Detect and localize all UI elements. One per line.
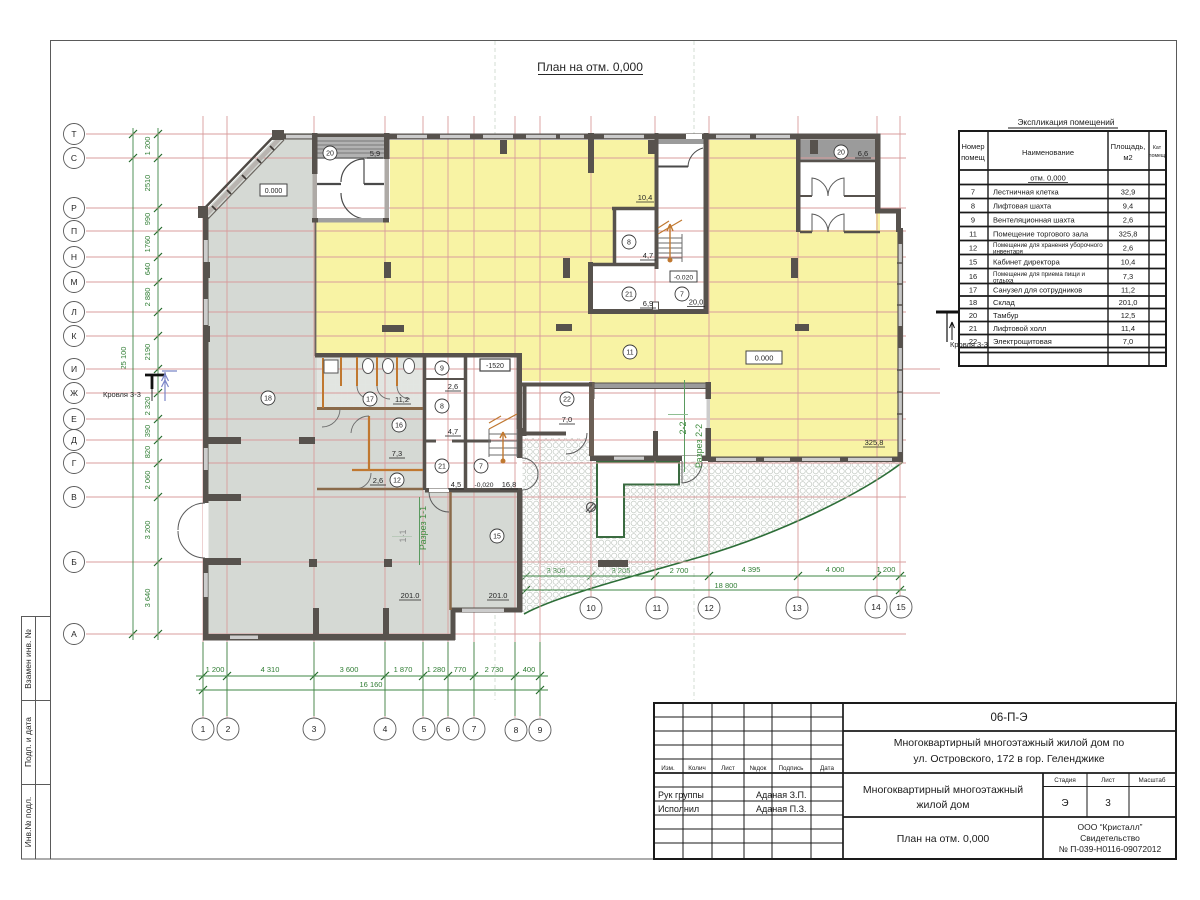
svg-text:10,4: 10,4 [638,193,653,202]
svg-text:Взамен инв. №: Взамен инв. № [23,629,33,689]
svg-text:15: 15 [969,258,977,267]
svg-text:Санузел для сотрудников: Санузел для сотрудников [993,286,1082,295]
svg-text:201,0: 201,0 [1119,298,1138,307]
svg-text:Лист: Лист [1101,777,1115,784]
svg-text:5,9: 5,9 [370,149,380,158]
svg-text:7: 7 [680,292,684,299]
svg-text:0.000: 0.000 [265,188,283,195]
svg-text:Ж: Ж [70,388,78,398]
svg-text:2,6: 2,6 [1123,216,1133,225]
svg-text:Вентеляционная шахта: Вентеляционная шахта [993,216,1075,225]
svg-text:Э: Э [1061,798,1068,809]
svg-text:7,0: 7,0 [1123,337,1133,346]
svg-text:1 200: 1 200 [143,137,152,156]
svg-text:9,4: 9,4 [1123,202,1133,211]
svg-text:11,2: 11,2 [395,395,409,404]
svg-text:Номер: Номер [961,142,984,151]
svg-text:7,0: 7,0 [562,415,572,424]
svg-text:Кровля 3-3: Кровля 3-3 [103,390,141,399]
svg-text:16: 16 [395,423,403,430]
svg-text:25 100: 25 100 [119,347,128,370]
svg-text:2 060: 2 060 [143,471,152,490]
svg-text:отм. 0,000: отм. 0,000 [1030,174,1066,183]
svg-text:Лестничная клетка: Лестничная клетка [993,188,1060,197]
svg-text:-0.020: -0.020 [674,275,693,282]
svg-text:7: 7 [971,188,975,197]
svg-text:Разрез 2-2: Разрез 2-2 [694,424,704,468]
svg-text:2510: 2510 [143,175,152,192]
svg-text:Многоквартирный многоэтажный: Многоквартирный многоэтажный [863,784,1023,796]
svg-text:-0,020: -0,020 [475,482,494,489]
svg-text:8: 8 [627,240,631,247]
svg-text:А: А [71,629,77,639]
svg-text:16,8: 16,8 [502,480,517,489]
svg-text:22: 22 [563,397,571,404]
svg-text:Рук группы: Рук группы [658,790,704,800]
svg-text:2-2: 2-2 [678,421,688,434]
svg-text:20: 20 [837,150,845,157]
svg-text:Б: Б [71,557,77,567]
svg-text:13: 13 [792,603,802,613]
svg-text:4,7: 4,7 [643,251,653,260]
svg-text:П: П [71,226,77,236]
svg-text:7,3: 7,3 [392,449,402,458]
svg-text:Е: Е [71,414,77,424]
svg-text:Кабинет директора: Кабинет директора [993,258,1061,267]
svg-text:2,6: 2,6 [448,382,458,391]
svg-text:Лифтовая шахта: Лифтовая шахта [993,202,1052,211]
svg-text:2 880: 2 880 [143,288,152,307]
svg-text:17: 17 [366,397,374,404]
svg-text:640: 640 [143,263,152,276]
svg-text:11: 11 [653,603,662,613]
svg-text:5: 5 [422,724,427,734]
svg-text:Н: Н [71,252,77,262]
svg-text:325,8: 325,8 [1119,230,1138,239]
svg-text:8: 8 [514,725,519,735]
svg-text:3: 3 [312,724,317,734]
svg-text:390: 390 [143,425,152,438]
svg-text:12: 12 [704,603,714,613]
svg-text:20: 20 [326,151,334,158]
svg-text:Склад: Склад [993,298,1015,307]
svg-text:20: 20 [969,311,977,320]
svg-text:Наименование: Наименование [1022,148,1074,157]
svg-text:4 000: 4 000 [826,565,845,574]
svg-text:Л: Л [71,307,77,317]
svg-text:Стадия: Стадия [1054,777,1075,784]
svg-text:18: 18 [969,298,977,307]
svg-text:17: 17 [969,286,977,295]
svg-text:1 200: 1 200 [877,565,896,574]
svg-text:6,9: 6,9 [643,299,653,308]
svg-text:Электрощитовая: Электрощитовая [993,337,1052,346]
svg-text:№ П-039-Н0116-09072012: № П-039-Н0116-09072012 [1059,844,1162,854]
svg-text:-1520: -1520 [486,363,504,370]
svg-text:6,6: 6,6 [858,149,868,158]
svg-text:1 200: 1 200 [206,665,225,674]
svg-text:9: 9 [440,366,444,373]
svg-text:3 640: 3 640 [143,589,152,608]
svg-text:Лист: Лист [721,765,735,772]
svg-text:20,0: 20,0 [689,298,704,307]
svg-text:400: 400 [523,665,536,674]
svg-text:Колич: Колич [688,765,706,772]
svg-text:1 870: 1 870 [394,665,413,674]
svg-text:8: 8 [440,404,444,411]
svg-text:770: 770 [454,665,467,674]
svg-text:16 160: 16 160 [360,680,383,689]
svg-text:Масштаб: Масштаб [1139,776,1166,784]
svg-text:15: 15 [896,602,906,612]
svg-text:3 600: 3 600 [340,665,359,674]
svg-text:Р: Р [71,203,77,213]
svg-text:Экспликация помещений: Экспликация помещений [1017,117,1114,127]
svg-text:План на отм. 0,000: План на отм. 0,000 [537,60,643,74]
svg-text:жилой дом: жилой дом [917,799,970,811]
svg-text:7,3: 7,3 [1123,272,1133,281]
svg-text:11: 11 [626,350,633,357]
svg-text:1760: 1760 [143,236,152,253]
svg-text:22: 22 [969,337,977,346]
svg-text:12: 12 [969,244,977,253]
svg-text:2 320: 2 320 [143,397,152,416]
svg-text:11,4: 11,4 [1121,324,1135,333]
svg-text:14: 14 [871,602,881,612]
svg-text:Аданая З.П.: Аданая З.П. [756,790,807,800]
svg-text:К: К [72,331,77,341]
svg-text:7: 7 [472,724,477,734]
svg-text:Д: Д [71,435,77,445]
svg-text:6: 6 [446,724,451,734]
svg-text:Помещение торгового зала: Помещение торгового зала [993,230,1089,239]
svg-text:План на отм. 0,000: План на отм. 0,000 [897,833,990,845]
svg-text:Лифтовой холл: Лифтовой холл [993,324,1046,333]
svg-text:Инв.№ подл.: Инв.№ подл. [23,797,33,848]
svg-text:32,9: 32,9 [1121,188,1136,197]
svg-text:4 310: 4 310 [261,665,280,674]
svg-text:9: 9 [538,725,543,735]
svg-text:1: 1 [201,724,206,734]
svg-text:4,7: 4,7 [448,427,458,436]
svg-text:10,4: 10,4 [1121,258,1136,267]
svg-text:3: 3 [1105,798,1111,809]
svg-text:Многоквартирный многоэтажный ж: Многоквартирный многоэтажный жилой дом п… [894,737,1125,749]
svg-text:В: В [71,492,77,502]
svg-text:2 730: 2 730 [485,665,504,674]
svg-text:2,6: 2,6 [373,476,383,485]
svg-text:№док: №док [750,765,767,772]
svg-text:2: 2 [226,724,231,734]
svg-text:16: 16 [969,272,977,281]
svg-text:21: 21 [625,292,633,299]
svg-text:3 200: 3 200 [143,521,152,540]
svg-text:инвентаря: инвентаря [993,249,1023,256]
svg-text:Аданая П.З.: Аданая П.З. [756,804,807,814]
svg-text:201.0: 201.0 [489,591,508,600]
svg-text:С: С [71,153,77,163]
svg-text:990: 990 [143,213,152,226]
svg-text:10: 10 [586,603,596,613]
svg-text:201.0: 201.0 [401,591,420,600]
svg-text:помещ: помещ [961,153,985,162]
svg-text:Тамбур: Тамбур [993,311,1018,320]
svg-text:0.000: 0.000 [755,354,774,363]
svg-text:21: 21 [438,464,446,471]
svg-text:325,8: 325,8 [865,438,884,447]
svg-text:11: 11 [969,230,977,239]
svg-text:2190: 2190 [143,344,152,361]
svg-text:Подпись: Подпись [779,765,805,772]
svg-text:2,6: 2,6 [1123,244,1133,253]
svg-text:Исполнил: Исполнил [658,804,699,814]
svg-text:М: М [70,277,77,287]
svg-text:Изм.: Изм. [661,765,675,772]
svg-text:820: 820 [143,446,152,459]
svg-text:Подп. и дата: Подп. и дата [23,717,33,767]
svg-text:8: 8 [971,202,975,211]
svg-text:помещ: помещ [1149,153,1166,159]
svg-text:1 280: 1 280 [427,665,446,674]
svg-text:15: 15 [493,534,501,541]
svg-text:7: 7 [479,464,483,471]
svg-text:Свидетельство: Свидетельство [1080,833,1140,843]
svg-text:21: 21 [969,324,977,333]
svg-text:12: 12 [393,478,401,485]
svg-text:отдыха: отдыха [993,278,1014,285]
svg-text:И: И [71,364,77,374]
svg-text:2 700: 2 700 [670,566,689,575]
svg-text:4: 4 [383,724,388,734]
svg-text:ул. Островского, 172 в гор. Ге: ул. Островского, 172 в гор. Геленджике [913,753,1104,765]
svg-text:4 395: 4 395 [742,565,761,574]
svg-text:12,5: 12,5 [1121,311,1136,320]
svg-text:4,5: 4,5 [451,480,461,489]
svg-text:Т: Т [71,129,76,139]
svg-text:18: 18 [264,396,272,403]
svg-text:06-П-Э: 06-П-Э [991,712,1028,724]
svg-text:м2: м2 [1123,153,1132,162]
svg-text:ООО “Кристалл”: ООО “Кристалл” [1078,822,1143,832]
svg-text:Кат: Кат [1153,145,1162,151]
svg-text:Дата: Дата [820,765,834,772]
svg-text:11,2: 11,2 [1121,286,1135,295]
svg-text:18 800: 18 800 [715,581,738,590]
svg-text:Площадь,: Площадь, [1111,142,1146,151]
svg-text:9: 9 [971,216,975,225]
svg-text:Г: Г [72,458,77,468]
